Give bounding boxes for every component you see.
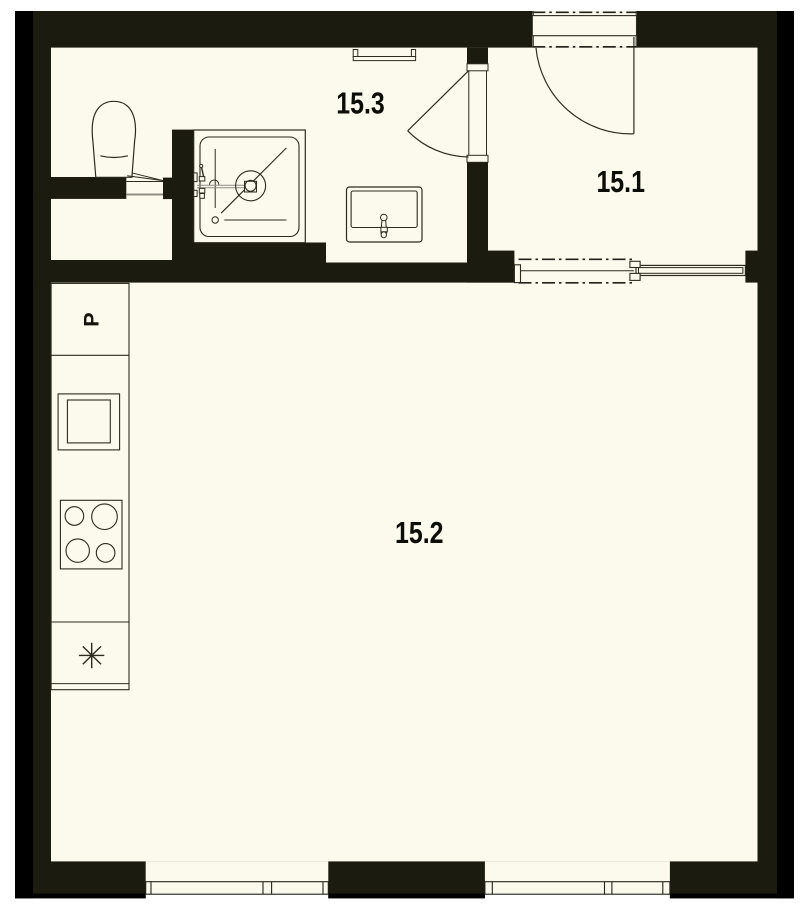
svg-text:P: P bbox=[80, 312, 104, 326]
svg-text:15.2: 15.2 bbox=[395, 515, 444, 550]
svg-text:15.1: 15.1 bbox=[596, 164, 645, 199]
svg-text:15.3: 15.3 bbox=[336, 85, 385, 120]
